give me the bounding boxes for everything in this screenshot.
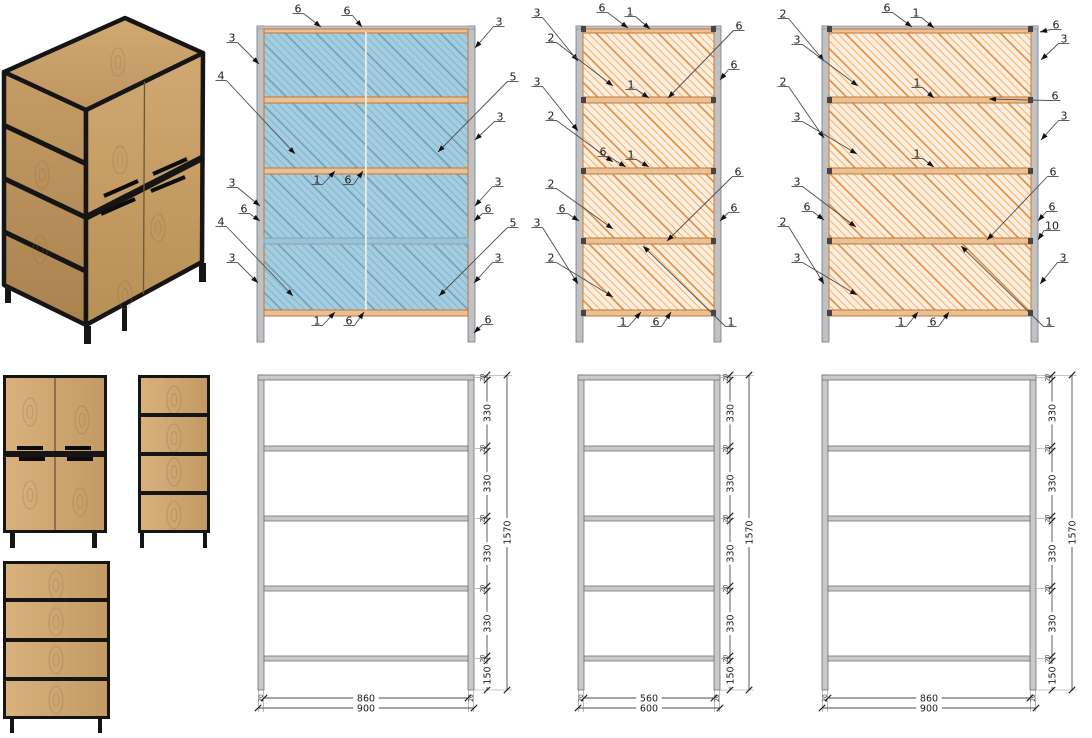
callout-label: 1	[914, 77, 921, 90]
callout-label: 6	[731, 59, 738, 72]
dim-label: 20	[578, 694, 585, 702]
callout-label: 6	[600, 146, 607, 159]
callout-label: 2	[548, 32, 555, 45]
callout-label: 6	[1049, 201, 1056, 214]
dim-label: 1570	[1067, 520, 1078, 544]
dim-label: 20	[723, 374, 730, 382]
dim-label: 20	[480, 445, 487, 453]
callout-label: 6	[930, 316, 937, 329]
dim-label: 330	[1047, 474, 1058, 492]
dim-label: 330	[725, 474, 736, 492]
callout-label: 6	[736, 20, 743, 33]
callout-label: 2	[780, 8, 787, 21]
dim-label: 20	[723, 515, 730, 523]
callout-label: 4	[218, 70, 225, 83]
callout-label: 2	[548, 252, 555, 265]
front-elevation: 66334531636364533166	[216, 3, 519, 343]
callout-label: 6	[295, 3, 302, 16]
dim-label: 20	[258, 694, 265, 702]
dim-label: 1570	[502, 520, 513, 544]
callout-label: 1	[314, 174, 321, 187]
callout-label: 6	[485, 203, 492, 216]
callout-label: 6	[559, 203, 566, 216]
callout-label: 6	[731, 202, 738, 215]
callout-label: 2	[548, 178, 555, 191]
callout-label: 3	[229, 32, 236, 45]
callout-label: 2	[780, 76, 787, 89]
callout-label: 3	[1060, 252, 1067, 265]
callout-label: 1	[620, 316, 627, 329]
dim-label: 330	[482, 474, 493, 492]
dim-label: 330	[1047, 544, 1058, 562]
callout-label: 3	[497, 111, 504, 124]
callout-label: 1	[914, 148, 921, 161]
dim-label: 150	[725, 666, 736, 684]
callout-label: 6	[884, 2, 891, 15]
callout-label: 6	[1052, 90, 1059, 103]
callout-label: 1	[1046, 316, 1053, 329]
callout-label: 1	[628, 149, 635, 162]
callout-label: 1	[898, 316, 905, 329]
dim-label: 20	[723, 445, 730, 453]
technical-drawing-page: 6633453163636453316661326632161263266161…	[0, 0, 1092, 738]
photo-3d-view	[4, 18, 206, 344]
callout-label: 6	[346, 315, 353, 328]
dim-label: 20	[1045, 515, 1052, 523]
dim-label: 20	[480, 374, 487, 382]
dim-label: 20	[480, 515, 487, 523]
callout-label: 6	[485, 314, 492, 327]
dim-label: 330	[482, 614, 493, 632]
callout-label: 1	[314, 315, 321, 328]
callout-label: 3	[229, 177, 236, 190]
callout-label: 3	[1061, 33, 1068, 46]
callout-label: 4	[218, 216, 225, 229]
callout-label: 3	[496, 16, 503, 29]
dim-label: 20	[480, 655, 487, 663]
callout-label: 6	[599, 2, 606, 15]
dim-frame-600: 202020202033033033033015015702020560600	[575, 372, 756, 715]
drawing-canvas: 6633453163636453316661326632161263266161…	[0, 0, 1092, 738]
callout-label: 6	[1050, 166, 1057, 179]
callout-label: 1	[913, 7, 920, 20]
callout-label: 6	[653, 316, 660, 329]
dim-label: 20	[723, 655, 730, 663]
callout-label: 3	[534, 7, 541, 20]
callout-label: 3	[495, 252, 502, 265]
dim-label: 900	[357, 703, 375, 714]
callout-label: 6	[345, 174, 352, 187]
dim-label: 330	[725, 404, 736, 422]
dim-label: 900	[920, 703, 938, 714]
callout-label: 2	[548, 110, 555, 123]
dim-frame-900-right: 202020202033033033033015015702020860900	[819, 372, 1079, 715]
dim-label: 20	[714, 694, 721, 702]
dim-label: 20	[723, 585, 730, 593]
dim-label: 20	[1030, 694, 1037, 702]
leader-arrow	[1038, 233, 1044, 240]
dim-label: 600	[640, 703, 658, 714]
callout-label: 3	[229, 252, 236, 265]
callout-label: 6	[804, 201, 811, 214]
callout-label: 3	[534, 217, 541, 230]
dim-label: 150	[1047, 666, 1058, 684]
dim-frame-900-left: 202020202033033033033015015702020860900	[255, 372, 514, 715]
dim-label: 20	[480, 585, 487, 593]
orthographic-wood-views	[3, 375, 210, 733]
callout-label: 1	[628, 79, 635, 92]
dim-label: 330	[725, 614, 736, 632]
callout-label: 3	[794, 34, 801, 47]
callout-label: 6	[344, 5, 351, 18]
callout-label: 6	[735, 166, 742, 179]
callout-label: 3	[794, 176, 801, 189]
dim-label: 330	[482, 544, 493, 562]
callout-label: 2	[780, 216, 787, 229]
callout-label: 1	[627, 6, 634, 19]
dim-label: 1570	[744, 520, 755, 544]
dim-label: 150	[482, 666, 493, 684]
callout-label: 1	[728, 316, 735, 329]
callout-label: 10	[1045, 220, 1059, 233]
dim-label: 330	[1047, 404, 1058, 422]
callout-label: 3	[495, 176, 502, 189]
callout-label: 6	[1053, 19, 1060, 32]
dimensioned-frames: 2020202020330330330330150157020208609002…	[255, 372, 1079, 715]
dim-label: 20	[822, 694, 829, 702]
dim-label: 20	[1045, 445, 1052, 453]
callout-label: 5	[510, 217, 517, 230]
dim-label: 20	[1045, 585, 1052, 593]
callout-label: 3	[1061, 110, 1068, 123]
side-elevation-narrow: 61326632161263266161	[532, 2, 745, 343]
callout-label: 3	[794, 252, 801, 265]
dim-label: 330	[482, 404, 493, 422]
callout-label: 3	[794, 111, 801, 124]
dim-label: 20	[1045, 374, 1052, 382]
dim-label: 20	[1045, 655, 1052, 663]
dim-label: 330	[1047, 614, 1058, 632]
hatched-elevations: 6633453163636453316661326632161263266161…	[216, 2, 1070, 343]
dim-label: 330	[725, 544, 736, 562]
side-elevation-wide: 612363236311636236103161	[778, 2, 1070, 343]
callout-label: 3	[534, 76, 541, 89]
callout-label: 5	[510, 71, 517, 84]
callout-label: 6	[241, 203, 248, 216]
dim-label: 20	[468, 694, 475, 702]
